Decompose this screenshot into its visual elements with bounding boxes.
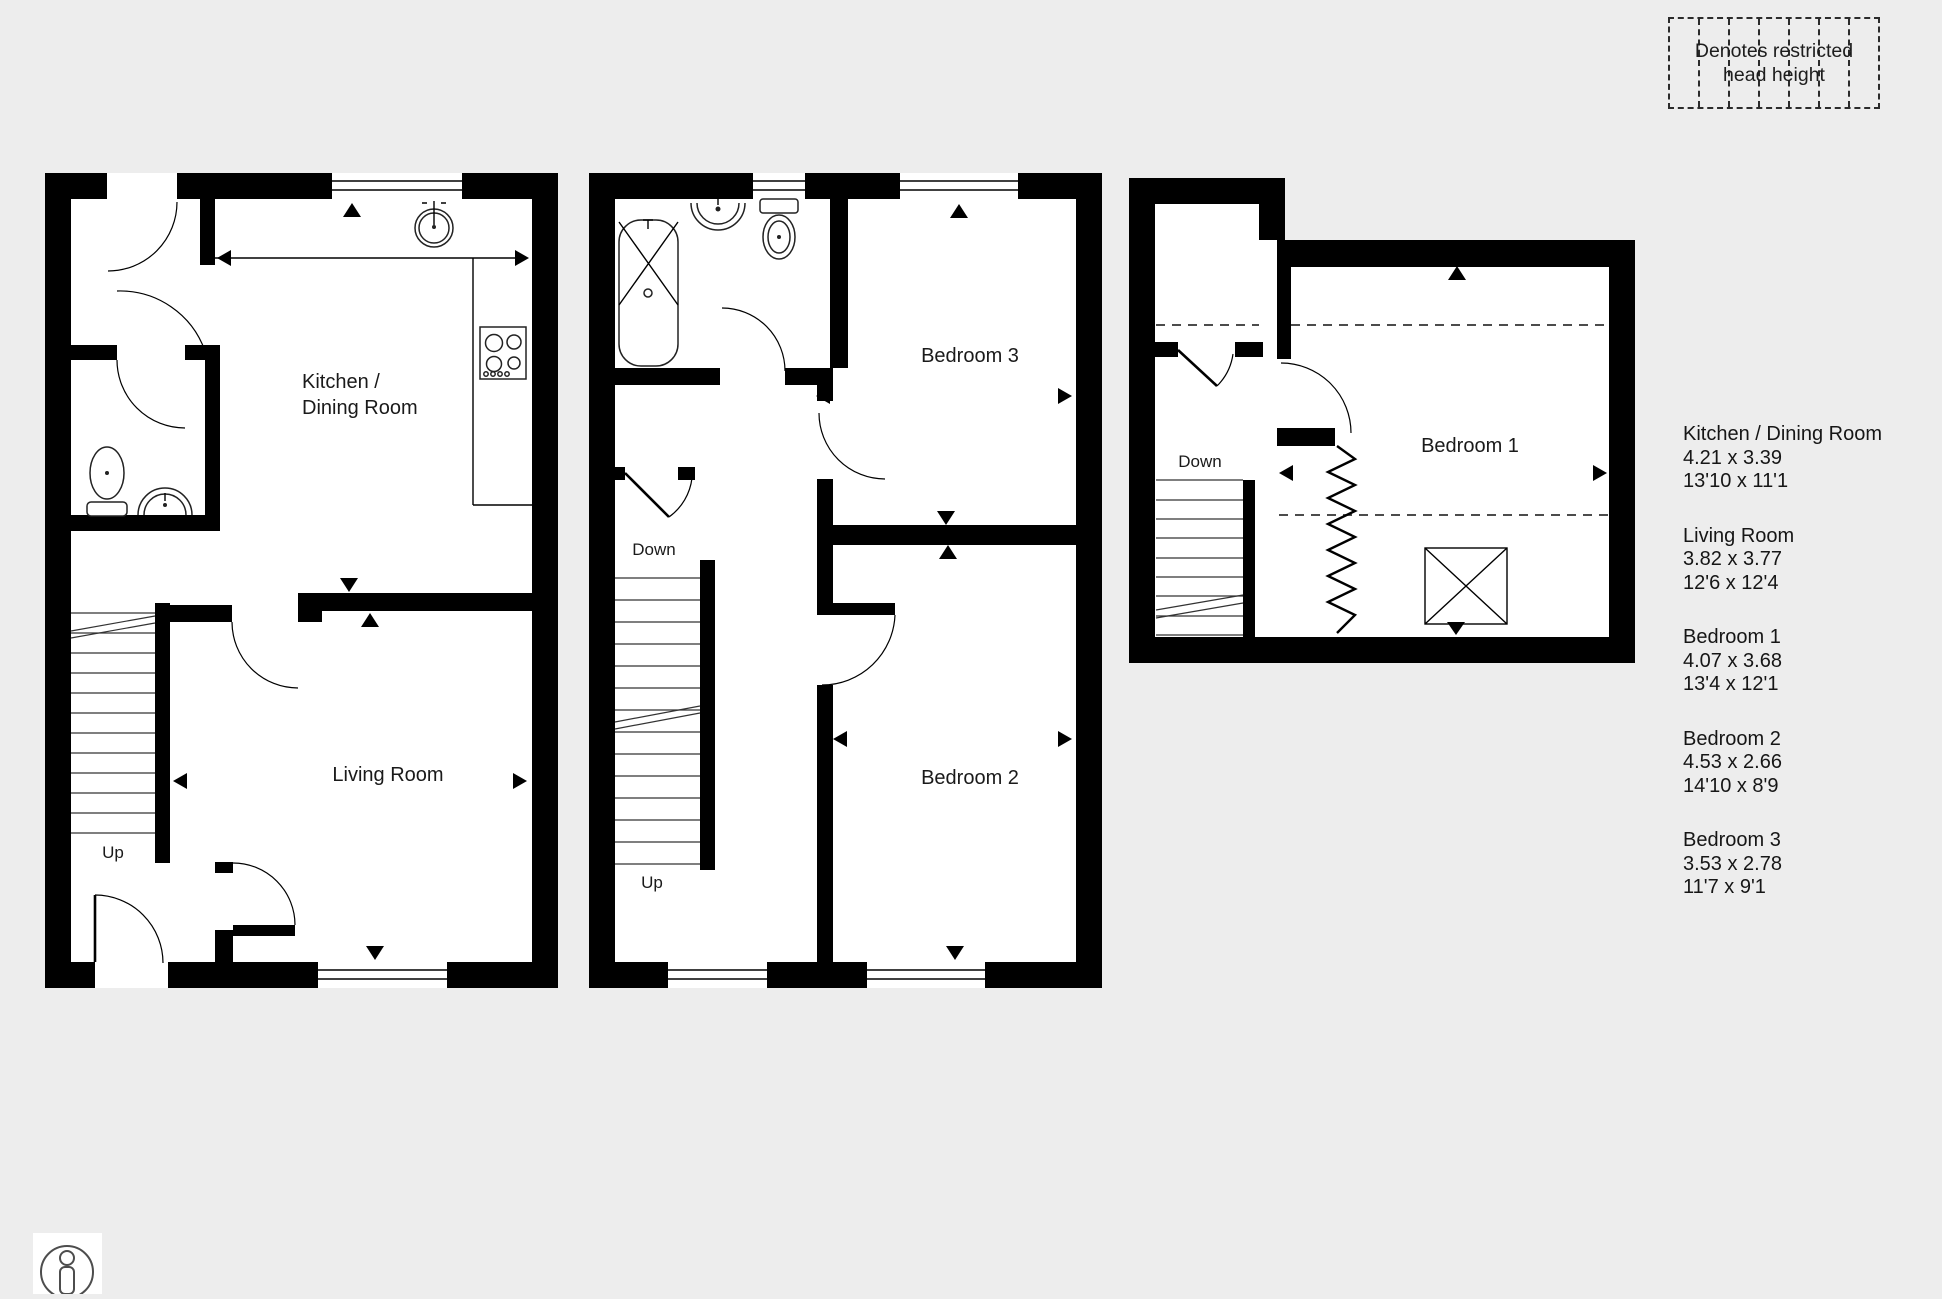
ground-up-label: Up — [102, 843, 124, 862]
first-floor-plan: Bedroom 3 Bedroom 2 Down Up — [589, 173, 1102, 988]
person-logo — [33, 1233, 102, 1294]
bedroom2-label: Bedroom 2 — [921, 767, 1019, 789]
room-name: Bedroom 1 — [1683, 626, 1933, 650]
legend-text-line2: head height — [1723, 63, 1825, 87]
room-name: Kitchen / Dining Room — [1683, 423, 1933, 447]
wc-toilet — [87, 447, 127, 516]
room-block-kitchen-dining: Kitchen / Dining Room 4.21 x 3.39 13'10 … — [1683, 423, 1933, 494]
room-dimensions-panel: Kitchen / Dining Room 4.21 x 3.39 13'10 … — [1683, 423, 1933, 931]
room-imperial-size: 13'10 x 11'1 — [1683, 470, 1933, 494]
kitchen-dining-label-line2: Dining Room — [302, 397, 418, 419]
room-block-bedroom-1: Bedroom 1 4.07 x 3.68 13'4 x 12'1 — [1683, 626, 1933, 697]
living-room-label: Living Room — [332, 764, 443, 786]
room-metric-size: 4.53 x 2.66 — [1683, 751, 1933, 775]
room-metric-size: 4.21 x 3.39 — [1683, 447, 1933, 471]
floorplan-page: { "colors": { "background": "#ededed", "… — [0, 0, 1942, 1294]
second-floor-plan: Bedroom 1 Down — [1129, 178, 1635, 663]
ground-floor-footprint — [45, 173, 558, 988]
kitchen-dining-label: Kitchen / — [302, 371, 380, 393]
room-metric-size: 3.82 x 3.77 — [1683, 548, 1933, 572]
bedroom1-label: Bedroom 1 — [1421, 435, 1519, 457]
legend-text-line1: Denotes restricted — [1695, 39, 1853, 63]
person-icon — [33, 1233, 102, 1294]
bathroom-toilet — [760, 199, 798, 259]
legend-text: Denotes restricted head height — [1670, 19, 1878, 107]
first-up-label: Up — [641, 873, 663, 892]
second-down-label: Down — [1178, 452, 1221, 471]
bath — [619, 220, 678, 366]
restricted-head-height-legend: Denotes restricted head height — [1668, 17, 1880, 109]
room-imperial-size: 12'6 x 12'4 — [1683, 572, 1933, 596]
first-down-label: Down — [632, 540, 675, 559]
room-block-bedroom-2: Bedroom 2 4.53 x 2.66 14'10 x 8'9 — [1683, 728, 1933, 799]
room-block-bedroom-3: Bedroom 3 3.53 x 2.78 11'7 x 9'1 — [1683, 829, 1933, 900]
ground-floor-plan: Kitchen / Dining Room Living Room Up — [45, 173, 558, 988]
hob — [480, 327, 526, 379]
room-name: Living Room — [1683, 525, 1933, 549]
room-block-living-room: Living Room 3.82 x 3.77 12'6 x 12'4 — [1683, 525, 1933, 596]
room-imperial-size: 13'4 x 12'1 — [1683, 673, 1933, 697]
room-metric-size: 3.53 x 2.78 — [1683, 853, 1933, 877]
room-imperial-size: 14'10 x 8'9 — [1683, 775, 1933, 799]
room-imperial-size: 11'7 x 9'1 — [1683, 876, 1933, 900]
room-name: Bedroom 2 — [1683, 728, 1933, 752]
room-metric-size: 4.07 x 3.68 — [1683, 650, 1933, 674]
room-name: Bedroom 3 — [1683, 829, 1933, 853]
bedroom3-label: Bedroom 3 — [921, 345, 1019, 367]
